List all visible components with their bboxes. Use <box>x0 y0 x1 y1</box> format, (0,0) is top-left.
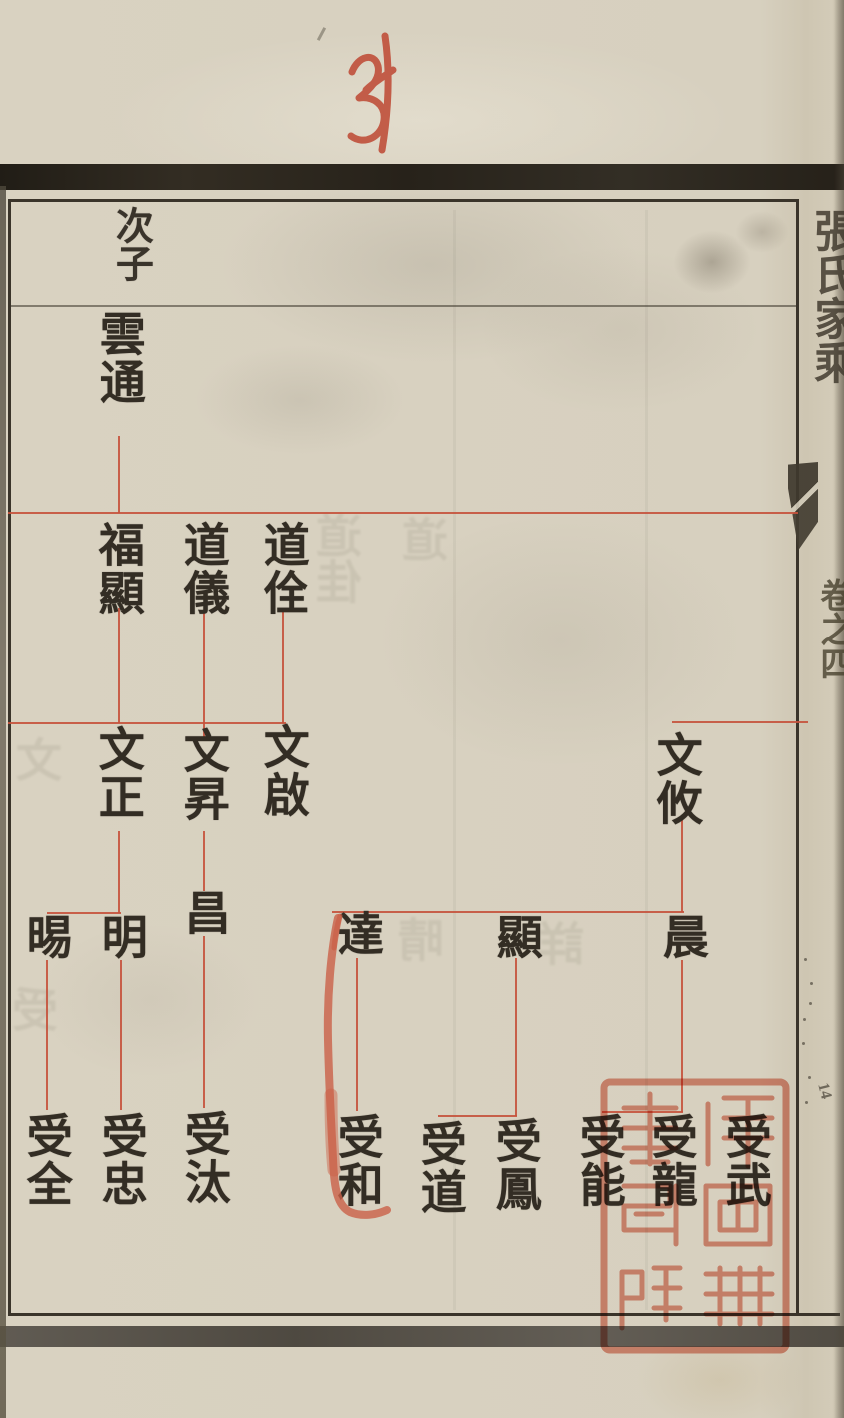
genealogy-page: 道佳 道 文 晴 詳 受 次子 雲通 福顯 道儀 道佺 文正 文昇 文啟 文攸 … <box>0 0 844 1418</box>
handwritten-number-mark <box>351 36 393 150</box>
hand-drawn-correction-stroke <box>328 916 387 1215</box>
collection-seal <box>596 1074 796 1360</box>
